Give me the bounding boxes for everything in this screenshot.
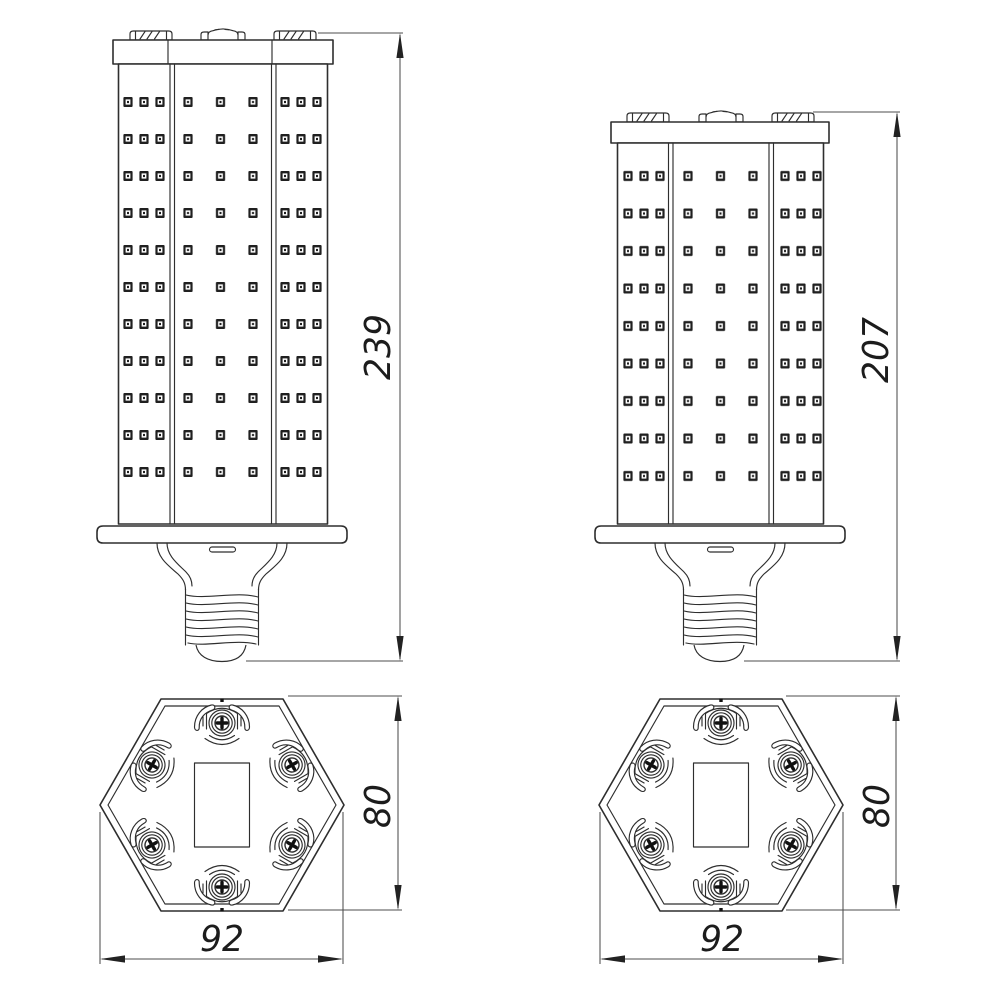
- skirt-slot: [708, 547, 734, 552]
- base-skirt-curves: [655, 543, 785, 590]
- top-cap: [611, 122, 829, 143]
- base-flange: [595, 526, 845, 543]
- drawing-canvas: 239 207 80 92: [0, 0, 1000, 1000]
- base-contact-tip: [196, 645, 246, 662]
- led-array-right: [277, 84, 325, 491]
- base-flange: [97, 526, 347, 543]
- base-contact-tip: [694, 645, 744, 662]
- e27-thread: [186, 595, 258, 644]
- base-skirt-curves: [157, 543, 287, 590]
- dimension-label-hex-right-width: 92: [700, 919, 744, 960]
- dimension-label-hex-left-width: 92: [200, 919, 244, 960]
- lamp-side-view-short: [595, 111, 845, 662]
- lamp-bottom-view-right: [599, 699, 843, 912]
- dimension-arrow-down: [893, 636, 900, 661]
- e27-thread: [684, 595, 756, 644]
- led-array-left: [120, 84, 168, 491]
- led-array-center: [672, 157, 770, 495]
- led-array-left: [620, 157, 668, 495]
- dimension-arrow-up: [893, 112, 900, 137]
- skirt-slot: [210, 547, 236, 552]
- technical-drawing: 239 207 80 92: [0, 0, 1000, 1000]
- led-array-right: [777, 157, 825, 495]
- dimension-label-tall-height: 239: [358, 314, 399, 380]
- lamp-bottom-view-left: [100, 699, 344, 912]
- dimension-arrow-up: [396, 33, 403, 58]
- dimension-label-hex-right-height: 80: [857, 784, 898, 828]
- dimension-label-hex-left-height: 80: [358, 784, 399, 828]
- dimension-label-short-height: 207: [856, 317, 897, 383]
- top-cap: [113, 40, 333, 64]
- lamp-side-view-tall: [97, 29, 347, 662]
- led-array-center: [172, 84, 270, 491]
- dimension-arrow-down: [396, 636, 403, 661]
